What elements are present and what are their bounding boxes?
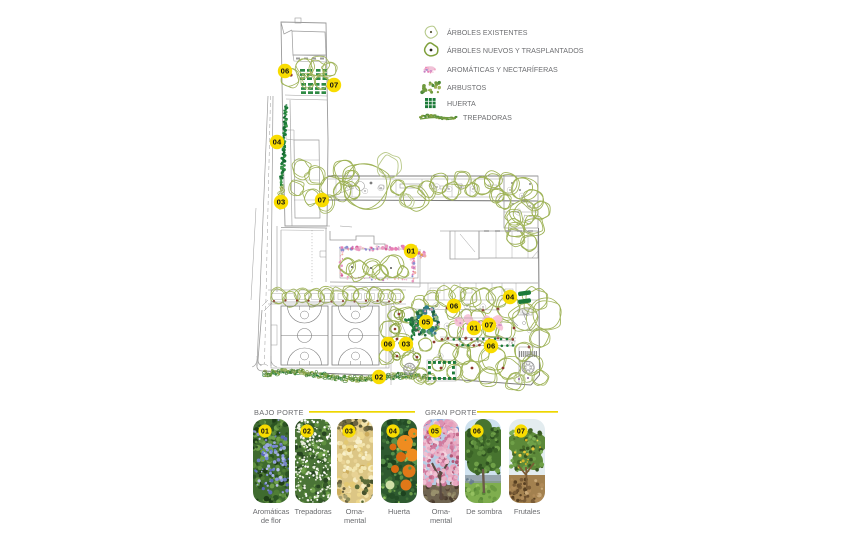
svg-text:Aromáticas: Aromáticas (253, 507, 290, 516)
svg-text:ARBUSTOS: ARBUSTOS (447, 84, 487, 92)
svg-text:ÁRBOLES NUEVOS Y TRASPLANTADOS: ÁRBOLES NUEVOS Y TRASPLANTADOS (447, 46, 584, 55)
svg-text:De sombra: De sombra (466, 507, 503, 516)
svg-text:Trepadoras: Trepadoras (294, 507, 331, 516)
svg-text:03: 03 (345, 429, 353, 436)
svg-text:GRAN PORTE: GRAN PORTE (425, 408, 477, 417)
svg-text:01: 01 (470, 324, 479, 333)
svg-text:06: 06 (281, 67, 290, 76)
svg-text:ÁRBOLES EXISTENTES: ÁRBOLES EXISTENTES (447, 28, 528, 37)
svg-text:BAJO PORTE: BAJO PORTE (254, 408, 304, 417)
svg-text:de flor: de flor (261, 516, 282, 525)
svg-text:04: 04 (389, 429, 397, 436)
svg-text:Orna-: Orna- (346, 507, 365, 516)
svg-text:Orna-: Orna- (432, 507, 451, 516)
svg-text:mental: mental (344, 516, 366, 525)
svg-text:04: 04 (506, 293, 515, 302)
svg-text:05: 05 (431, 429, 439, 436)
svg-text:02: 02 (303, 429, 311, 436)
svg-text:Frutales: Frutales (514, 507, 541, 516)
svg-text:06: 06 (487, 342, 496, 351)
svg-text:AROMÁTICAS Y NECTARÍFERAS: AROMÁTICAS Y NECTARÍFERAS (447, 65, 558, 74)
svg-text:03: 03 (402, 340, 411, 349)
svg-text:TREPADORAS: TREPADORAS (463, 114, 512, 122)
svg-text:06: 06 (384, 340, 393, 349)
svg-text:HUERTA: HUERTA (447, 100, 476, 108)
svg-text:Huerta: Huerta (388, 507, 411, 516)
svg-text:03: 03 (277, 198, 286, 207)
svg-text:04: 04 (273, 138, 282, 147)
svg-text:05: 05 (422, 318, 431, 327)
svg-text:07: 07 (485, 321, 494, 330)
svg-text:01: 01 (407, 247, 416, 256)
svg-text:01: 01 (261, 429, 269, 436)
svg-text:07: 07 (318, 196, 327, 205)
svg-text:07: 07 (330, 81, 339, 90)
svg-text:02: 02 (375, 373, 384, 382)
svg-text:06: 06 (450, 302, 459, 311)
svg-text:mental: mental (430, 516, 452, 525)
svg-text:07: 07 (517, 429, 525, 436)
svg-text:06: 06 (473, 429, 481, 436)
